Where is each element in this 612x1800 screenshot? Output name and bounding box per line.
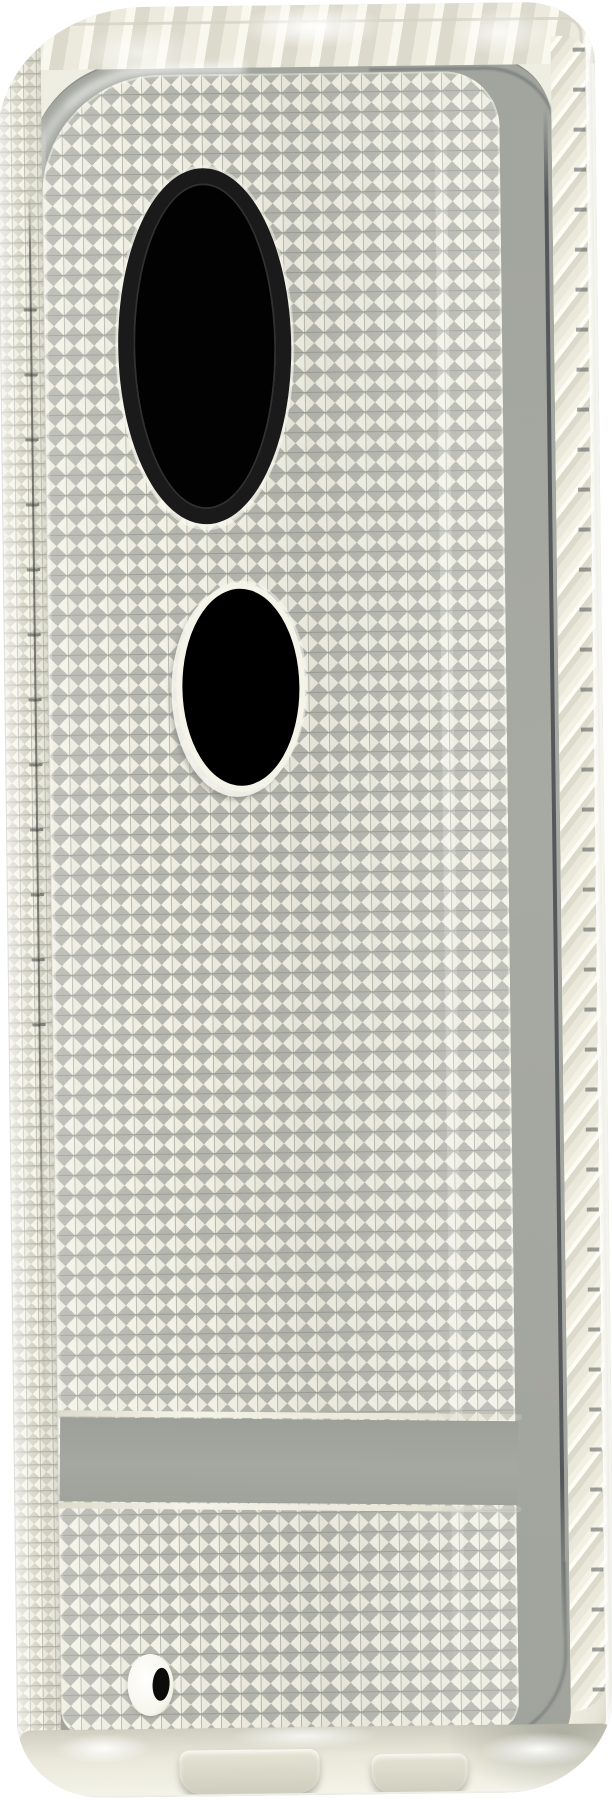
product-photo-stage xyxy=(0,0,612,1800)
bottom-rim-glare xyxy=(229,1723,379,1750)
phone-case xyxy=(0,1,612,1798)
phone-top-right-edge-arc xyxy=(369,66,560,241)
usb-port-bump xyxy=(179,1749,320,1795)
bottom-rim-glare xyxy=(55,1733,151,1764)
brand-band xyxy=(59,1417,518,1505)
case-bottom-rim xyxy=(19,1723,612,1796)
